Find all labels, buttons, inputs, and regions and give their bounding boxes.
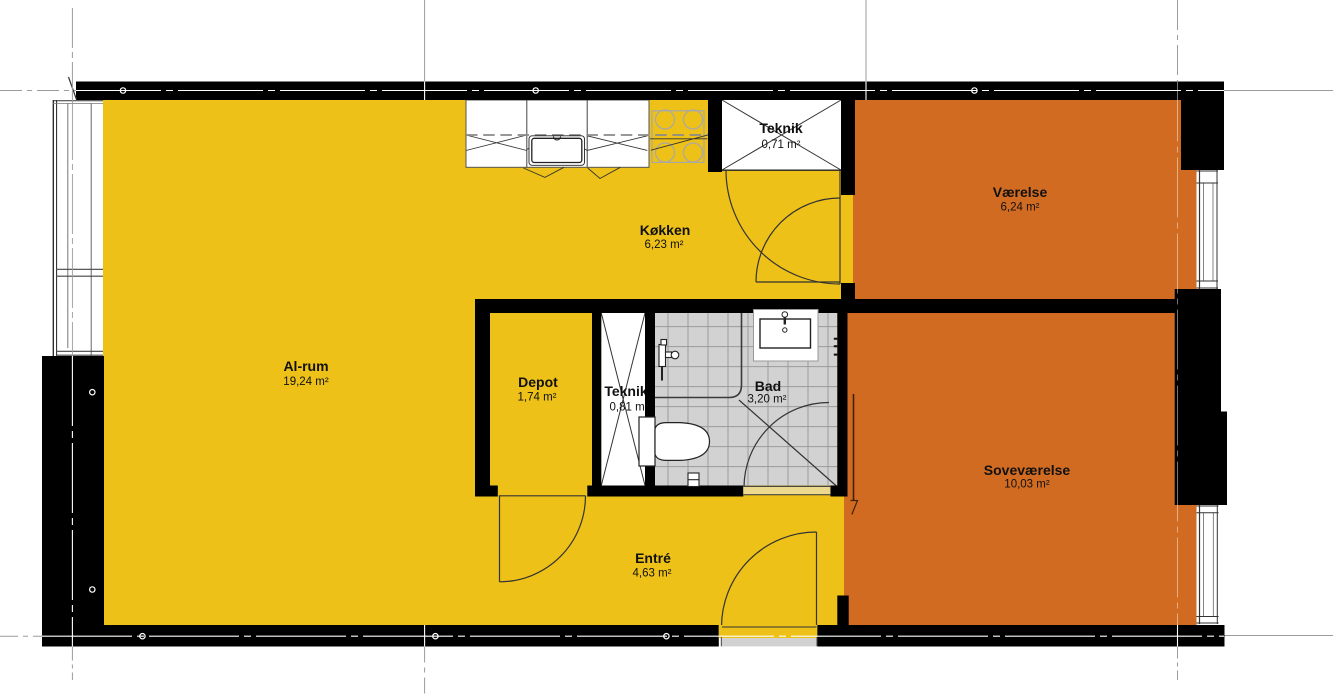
svg-text:4,63 m²: 4,63 m² — [633, 568, 672, 580]
svg-text:Værelse: Værelse — [993, 184, 1048, 200]
svg-text:Teknik: Teknik — [759, 120, 803, 136]
svg-text:Entré: Entré — [635, 550, 671, 566]
svg-text:0,81 m²: 0,81 m² — [610, 402, 649, 414]
svg-text:0,71 m²: 0,71 m² — [762, 139, 801, 151]
svg-text:10,03 m²: 10,03 m² — [1004, 479, 1050, 491]
svg-text:1,74 m²: 1,74 m² — [518, 392, 557, 404]
svg-text:19,24 m²: 19,24 m² — [283, 376, 329, 388]
svg-text:Teknik: Teknik — [604, 383, 648, 399]
svg-text:Soveværelse: Soveværelse — [984, 462, 1071, 478]
svg-text:6,24 m²: 6,24 m² — [1001, 202, 1040, 214]
svg-text:6,23 m²: 6,23 m² — [645, 239, 684, 251]
svg-text:3,20 m²: 3,20 m² — [748, 394, 787, 406]
svg-text:Al-rum: Al-rum — [283, 358, 328, 374]
svg-text:Køkken: Køkken — [640, 222, 691, 238]
svg-text:Bad: Bad — [755, 378, 781, 394]
svg-text:Depot: Depot — [518, 374, 558, 390]
